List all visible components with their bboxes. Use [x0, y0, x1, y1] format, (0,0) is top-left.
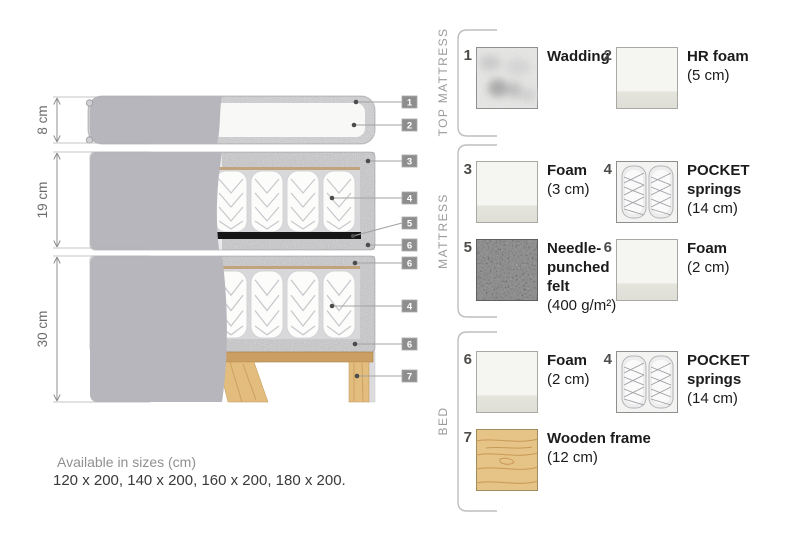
- legend-item-name: HR foam: [687, 47, 773, 66]
- legend-item-name: POCKET springs: [687, 351, 773, 389]
- legend-item-hr-foam: 2 HR foam (5 cm): [592, 47, 773, 109]
- legend-item-pocket-springs-bed: 4 POCKET springs (14 cm): [592, 351, 773, 413]
- callout-tag: 4: [407, 194, 413, 205]
- wood-legs: [218, 362, 369, 402]
- callout-tag: 7: [407, 372, 412, 383]
- legend-item-detail: (2 cm): [687, 258, 773, 277]
- callout-tag: 6: [407, 340, 412, 351]
- legend-item-name: POCKET springs: [687, 161, 773, 199]
- legend-item-detail: (12 cm): [547, 448, 707, 467]
- mattress-layer: [90, 152, 375, 250]
- top-mattress-layer: [86, 96, 375, 144]
- callout-tag: 4: [407, 302, 413, 313]
- section-title-mattress: MATTRESS: [436, 193, 450, 269]
- dimension-label-top-mattress: 8 cm: [35, 105, 50, 134]
- callout-tag: 6: [407, 259, 412, 270]
- callout-tag: 5: [407, 219, 413, 230]
- callout-tag: 6: [407, 241, 412, 252]
- sizes-list: 120 x 200, 140 x 200, 160 x 200, 180 x 2…: [53, 472, 346, 489]
- legend-item-number: 7: [452, 429, 472, 446]
- wood-rail: [213, 352, 373, 362]
- legend-item-number: 5: [452, 239, 472, 256]
- legend-item-name: Foam: [687, 239, 773, 258]
- bed-cross-section-diagram: 8 cm 19 cm 30 cm: [0, 0, 430, 520]
- legend-item-detail: (14 cm): [687, 389, 773, 408]
- foam-swatch: [616, 239, 678, 301]
- wadding-swatch: [476, 47, 538, 109]
- legend-item-pocket-springs: 4 POCKET springs (14 cm): [592, 161, 773, 223]
- product-construction-sheet: 8 cm 19 cm 30 cm: [0, 0, 800, 533]
- dimension-label-bed: 30 cm: [35, 311, 50, 348]
- legend-item-number: 6: [452, 351, 472, 368]
- legend-item-detail: (14 cm): [687, 199, 773, 218]
- legend-item-wooden-frame: 7 Wooden frame (12 cm): [452, 429, 707, 491]
- section-title-bed: BED: [436, 407, 450, 436]
- legend-item-foam-2: 6 Foam (2 cm): [592, 239, 773, 301]
- legend-item-detail: (5 cm): [687, 66, 773, 85]
- pocket-springs-swatch: [616, 161, 678, 223]
- sizes-heading: Available in sizes (cm): [57, 454, 196, 470]
- legend-item-number: 1: [452, 47, 472, 64]
- foam-swatch: [476, 351, 538, 413]
- callout-tag: 2: [407, 121, 412, 132]
- foam-swatch: [476, 161, 538, 223]
- legend-item-number: 4: [592, 351, 612, 368]
- felt-swatch: [476, 239, 538, 301]
- felt-layer-bar: [213, 232, 361, 239]
- legend-item-number: 6: [592, 239, 612, 256]
- pocket-springs-swatch: [616, 351, 678, 413]
- dimension-arrows: [54, 98, 60, 401]
- callout-tag: 1: [407, 98, 413, 109]
- legend-item-name: Wooden frame: [547, 429, 707, 448]
- dimension-label-mattress: 19 cm: [35, 182, 50, 219]
- wood-swatch: [476, 429, 538, 491]
- bed-layer: [90, 256, 375, 402]
- legend-item-number: 2: [592, 47, 612, 64]
- legend-item-number: 4: [592, 161, 612, 178]
- foam-swatch: [616, 47, 678, 109]
- callout-tag: 3: [407, 157, 412, 168]
- section-title-top-mattress: TOP MATTRESS: [436, 28, 450, 137]
- legend-item-number: 3: [452, 161, 472, 178]
